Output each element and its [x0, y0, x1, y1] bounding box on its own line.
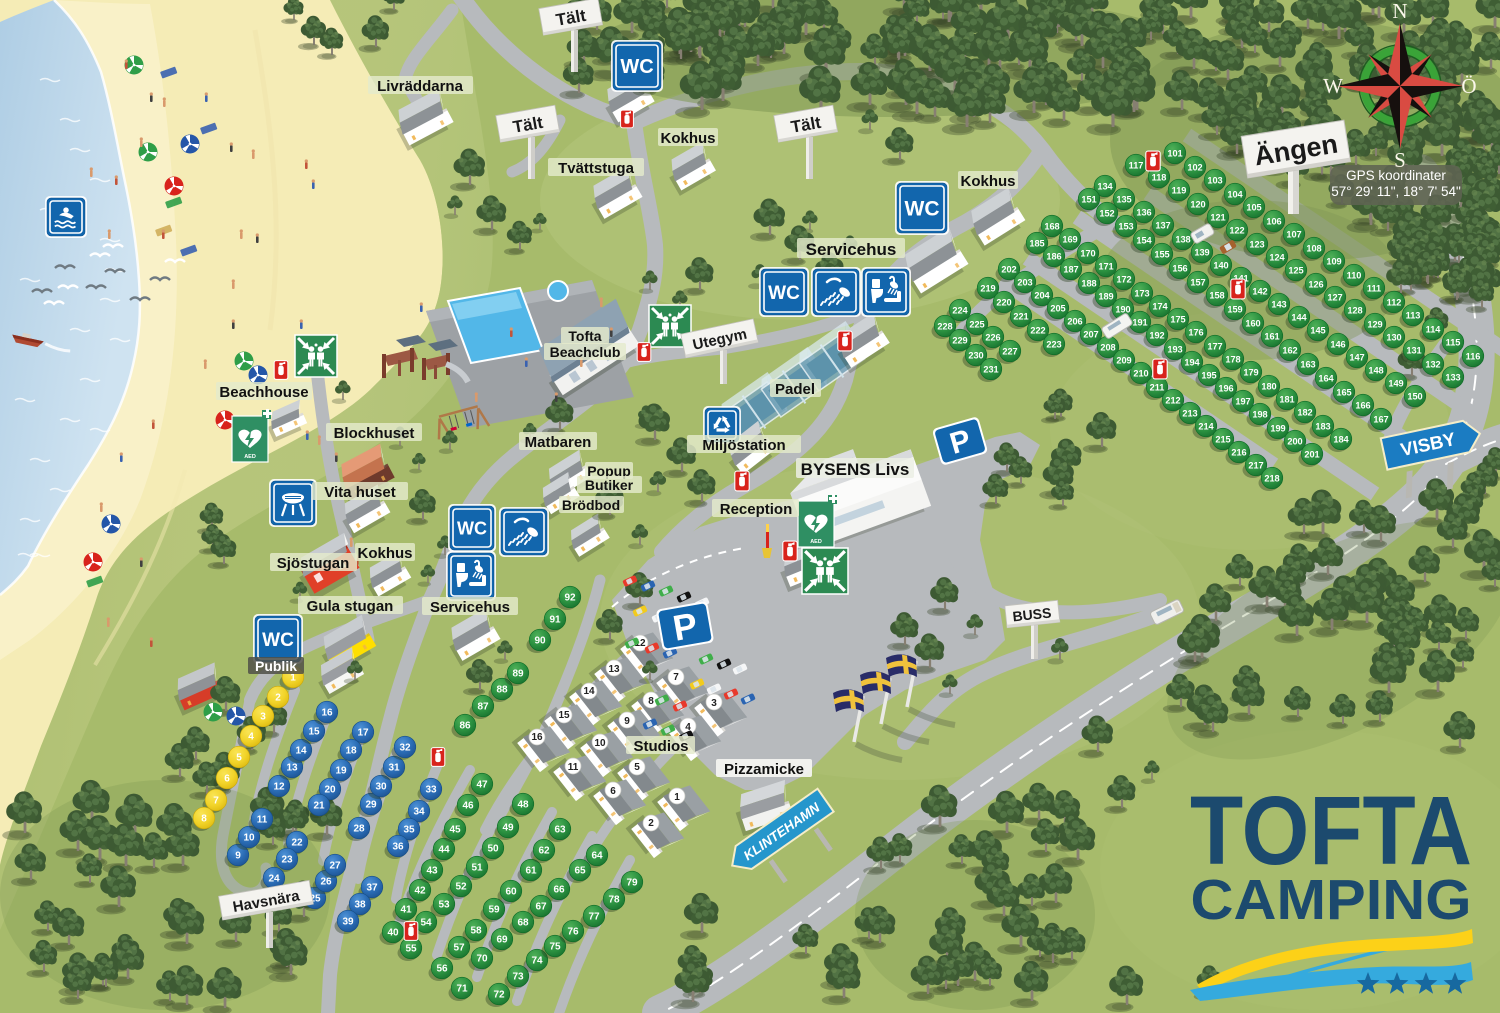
svg-text:54: 54: [420, 918, 432, 929]
svg-text:43: 43: [426, 866, 438, 877]
svg-text:Reception: Reception: [720, 501, 793, 518]
svg-text:Gula stugan: Gula stugan: [307, 598, 394, 615]
svg-text:140: 140: [1213, 261, 1228, 271]
svg-text:9: 9: [624, 716, 630, 727]
svg-text:184: 184: [1333, 435, 1349, 445]
svg-text:49: 49: [502, 823, 514, 834]
svg-text:193: 193: [1167, 345, 1182, 355]
svg-text:227: 227: [1002, 347, 1017, 357]
svg-text:AED: AED: [244, 454, 256, 460]
svg-text:15: 15: [558, 710, 570, 721]
svg-text:62: 62: [538, 846, 550, 857]
svg-text:169: 169: [1062, 235, 1077, 245]
svg-text:16: 16: [531, 732, 543, 743]
svg-text:69: 69: [496, 935, 508, 946]
svg-text:45: 45: [449, 825, 461, 836]
svg-text:189: 189: [1098, 292, 1113, 302]
svg-text:47: 47: [476, 780, 488, 791]
svg-text:Livräddarna: Livräddarna: [377, 78, 464, 95]
svg-text:42: 42: [414, 886, 426, 897]
svg-text:173: 173: [1134, 289, 1149, 299]
svg-text:196: 196: [1218, 384, 1233, 394]
svg-text:Kokhus: Kokhus: [960, 173, 1015, 190]
svg-text:205: 205: [1050, 304, 1065, 314]
svg-text:Beachclub: Beachclub: [550, 344, 621, 360]
svg-text:210: 210: [1133, 369, 1148, 379]
svg-text:203: 203: [1017, 278, 1032, 288]
svg-text:68: 68: [517, 918, 529, 929]
svg-text:37: 37: [366, 883, 378, 894]
svg-text:181: 181: [1279, 395, 1294, 405]
svg-text:1: 1: [674, 792, 680, 803]
svg-text:121: 121: [1210, 213, 1225, 223]
svg-text:119: 119: [1172, 186, 1187, 196]
svg-text:71: 71: [456, 984, 468, 995]
svg-text:208: 208: [1100, 343, 1115, 353]
svg-text:123: 123: [1249, 240, 1264, 250]
svg-text:88: 88: [496, 685, 508, 696]
svg-text:158: 158: [1209, 291, 1224, 301]
svg-text:162: 162: [1282, 346, 1297, 356]
svg-text:13: 13: [286, 763, 298, 774]
svg-text:212: 212: [1165, 396, 1180, 406]
svg-text:40: 40: [387, 928, 399, 939]
svg-text:Beachhouse: Beachhouse: [219, 384, 308, 401]
svg-text:142: 142: [1252, 287, 1267, 297]
svg-text:18: 18: [345, 746, 357, 757]
svg-text:78: 78: [608, 895, 620, 906]
svg-text:27: 27: [329, 861, 341, 872]
svg-text:29: 29: [365, 800, 377, 811]
svg-text:147: 147: [1349, 353, 1364, 363]
svg-text:124: 124: [1269, 253, 1285, 263]
svg-text:15: 15: [308, 727, 320, 738]
svg-text:22: 22: [291, 838, 303, 849]
svg-text:133: 133: [1445, 373, 1460, 383]
svg-text:103: 103: [1207, 176, 1222, 186]
svg-text:152: 152: [1099, 209, 1114, 219]
svg-text:5: 5: [634, 762, 640, 773]
svg-text:115: 115: [1446, 338, 1461, 348]
svg-text:178: 178: [1225, 355, 1240, 365]
svg-text:87: 87: [477, 702, 489, 713]
svg-text:221: 221: [1013, 312, 1028, 322]
svg-text:74: 74: [531, 956, 543, 967]
svg-text:138: 138: [1175, 235, 1190, 245]
svg-text:14: 14: [583, 686, 595, 697]
svg-text:8: 8: [201, 814, 207, 825]
svg-text:145: 145: [1310, 326, 1325, 336]
svg-text:Publik: Publik: [255, 658, 297, 674]
svg-text:64: 64: [591, 851, 603, 862]
svg-text:Kokhus: Kokhus: [660, 130, 715, 147]
svg-text:179: 179: [1243, 368, 1258, 378]
svg-text:7: 7: [673, 672, 679, 683]
svg-text:11: 11: [257, 815, 268, 826]
svg-text:35: 35: [403, 825, 415, 836]
svg-text:211: 211: [1150, 383, 1165, 393]
svg-text:90: 90: [534, 636, 546, 647]
svg-text:170: 170: [1080, 249, 1095, 259]
svg-text:79: 79: [626, 878, 638, 889]
svg-text:111: 111: [1367, 284, 1381, 294]
svg-text:122: 122: [1229, 226, 1244, 236]
svg-text:17: 17: [357, 728, 369, 739]
svg-text:2: 2: [275, 693, 281, 704]
svg-text:167: 167: [1373, 415, 1388, 425]
svg-text:67: 67: [535, 902, 547, 913]
svg-text:166: 166: [1355, 401, 1370, 411]
svg-text:32: 32: [399, 743, 411, 754]
svg-text:WC: WC: [905, 198, 940, 221]
svg-text:N: N: [1392, 0, 1407, 23]
svg-text:10: 10: [594, 738, 606, 749]
svg-text:Servicehus: Servicehus: [430, 599, 510, 616]
svg-text:153: 153: [1118, 222, 1133, 232]
svg-text:89: 89: [512, 669, 524, 680]
svg-text:38: 38: [354, 900, 366, 911]
svg-text:129: 129: [1367, 320, 1382, 330]
svg-text:143: 143: [1271, 300, 1286, 310]
svg-text:4: 4: [248, 732, 254, 743]
svg-text:66: 66: [553, 885, 565, 896]
svg-text:126: 126: [1308, 280, 1323, 290]
svg-text:110: 110: [1347, 271, 1362, 281]
svg-text:149: 149: [1388, 379, 1403, 389]
svg-text:61: 61: [525, 866, 537, 877]
svg-text:26: 26: [320, 877, 332, 888]
svg-text:19: 19: [335, 766, 347, 777]
svg-text:72: 72: [493, 990, 505, 1001]
svg-text:218: 218: [1264, 474, 1279, 484]
svg-text:60: 60: [505, 887, 517, 898]
svg-text:202: 202: [1001, 265, 1016, 275]
svg-text:229: 229: [952, 336, 967, 346]
svg-text:199: 199: [1270, 424, 1285, 434]
svg-text:160: 160: [1245, 319, 1260, 329]
svg-text:33: 33: [425, 785, 437, 796]
svg-text:118: 118: [1152, 173, 1167, 183]
svg-text:28: 28: [353, 824, 365, 835]
svg-text:51: 51: [471, 863, 483, 874]
svg-text:52: 52: [455, 882, 467, 893]
svg-text:197: 197: [1235, 397, 1250, 407]
svg-text:109: 109: [1326, 257, 1341, 267]
svg-text:185: 185: [1029, 239, 1044, 249]
svg-text:34: 34: [413, 807, 425, 818]
svg-text:187: 187: [1063, 265, 1078, 275]
svg-text:Matbaren: Matbaren: [525, 434, 592, 451]
svg-text:Sjöstugan: Sjöstugan: [277, 555, 350, 572]
svg-text:216: 216: [1231, 448, 1246, 458]
svg-text:223: 223: [1046, 340, 1061, 350]
svg-text:7: 7: [213, 796, 219, 807]
svg-text:164: 164: [1318, 374, 1334, 384]
svg-text:116: 116: [1466, 352, 1481, 362]
svg-text:128: 128: [1347, 306, 1362, 316]
svg-text:Padel: Padel: [775, 381, 815, 398]
svg-text:3: 3: [260, 712, 266, 723]
svg-text:91: 91: [549, 615, 561, 626]
svg-text:222: 222: [1030, 326, 1045, 336]
svg-text:192: 192: [1149, 331, 1164, 341]
svg-text:228: 228: [937, 322, 952, 332]
svg-text:155: 155: [1154, 250, 1169, 260]
svg-text:Pizzamicke: Pizzamicke: [724, 761, 804, 778]
svg-text:W: W: [1323, 74, 1343, 98]
svg-text:204: 204: [1034, 291, 1050, 301]
svg-text:Blockhuset: Blockhuset: [334, 425, 415, 442]
svg-text:195: 195: [1201, 371, 1216, 381]
svg-text:101: 101: [1167, 149, 1182, 159]
svg-text:137: 137: [1155, 221, 1170, 231]
svg-text:127: 127: [1327, 293, 1342, 303]
svg-text:6: 6: [610, 786, 616, 797]
svg-text:Studios: Studios: [634, 738, 689, 755]
svg-text:171: 171: [1098, 262, 1113, 272]
svg-text:14: 14: [295, 746, 307, 757]
svg-text:201: 201: [1304, 450, 1319, 460]
svg-text:53: 53: [438, 900, 450, 911]
svg-text:30: 30: [375, 782, 387, 793]
svg-text:56: 56: [436, 964, 448, 975]
svg-text:219: 219: [980, 284, 995, 294]
svg-text:135: 135: [1116, 195, 1131, 205]
svg-text:12: 12: [273, 782, 285, 793]
svg-text:70: 70: [476, 954, 488, 965]
svg-text:144: 144: [1291, 313, 1307, 323]
svg-text:63: 63: [554, 825, 566, 836]
svg-text:120: 120: [1190, 200, 1205, 210]
svg-text:73: 73: [512, 972, 524, 983]
svg-text:226: 226: [985, 333, 1000, 343]
svg-text:Butiker: Butiker: [585, 477, 634, 493]
svg-text:2: 2: [648, 818, 654, 829]
svg-text:198: 198: [1252, 410, 1267, 420]
svg-text:WC: WC: [457, 519, 487, 539]
svg-text:WC: WC: [262, 630, 294, 651]
svg-text:107: 107: [1286, 230, 1301, 240]
svg-text:55: 55: [405, 944, 417, 955]
svg-text:Vita huset: Vita huset: [324, 484, 395, 501]
svg-text:108: 108: [1306, 244, 1321, 254]
svg-text:92: 92: [564, 593, 576, 604]
svg-text:215: 215: [1215, 435, 1230, 445]
svg-text:6: 6: [224, 774, 230, 785]
svg-text:Tofta: Tofta: [568, 328, 601, 344]
svg-text:65: 65: [574, 866, 586, 877]
svg-text:161: 161: [1264, 332, 1279, 342]
svg-text:50: 50: [487, 844, 499, 855]
svg-text:131: 131: [1406, 346, 1421, 356]
svg-text:180: 180: [1261, 382, 1276, 392]
svg-text:224: 224: [952, 306, 968, 316]
svg-text:157: 157: [1190, 278, 1205, 288]
svg-text:106: 106: [1266, 217, 1281, 227]
svg-text:172: 172: [1116, 275, 1131, 285]
svg-text:186: 186: [1046, 252, 1061, 262]
svg-text:165: 165: [1336, 388, 1351, 398]
svg-text:41: 41: [400, 905, 412, 916]
svg-text:214: 214: [1198, 422, 1214, 432]
svg-text:159: 159: [1227, 305, 1242, 315]
svg-text:150: 150: [1407, 392, 1422, 402]
svg-text:WC: WC: [620, 56, 653, 78]
svg-text:102: 102: [1187, 163, 1202, 173]
svg-text:117: 117: [1129, 161, 1144, 171]
svg-text:174: 174: [1152, 302, 1168, 312]
svg-text:136: 136: [1136, 208, 1151, 218]
svg-text:113: 113: [1406, 311, 1421, 321]
svg-text:190: 190: [1115, 305, 1130, 315]
svg-text:154: 154: [1136, 236, 1152, 246]
svg-text:5: 5: [236, 753, 242, 764]
svg-text:20: 20: [324, 785, 336, 796]
svg-text:139: 139: [1194, 248, 1209, 258]
svg-text:8: 8: [648, 696, 654, 707]
svg-text:58: 58: [470, 926, 482, 937]
svg-text:24: 24: [268, 874, 280, 885]
svg-text:1: 1: [290, 673, 296, 684]
svg-text:57: 57: [453, 943, 465, 954]
svg-text:168: 168: [1044, 222, 1059, 232]
svg-text:163: 163: [1300, 360, 1315, 370]
svg-text:21: 21: [313, 801, 325, 812]
svg-text:105: 105: [1246, 203, 1261, 213]
svg-text:182: 182: [1297, 408, 1312, 418]
svg-text:175: 175: [1170, 315, 1185, 325]
svg-text:217: 217: [1248, 461, 1263, 471]
svg-text:3: 3: [711, 698, 717, 709]
svg-text:206: 206: [1067, 317, 1082, 327]
svg-text:194: 194: [1184, 358, 1200, 368]
svg-text:S: S: [1394, 148, 1406, 172]
svg-text:125: 125: [1288, 266, 1303, 276]
svg-text:209: 209: [1116, 356, 1131, 366]
svg-text:207: 207: [1083, 330, 1098, 340]
svg-text:230: 230: [968, 351, 983, 361]
svg-text:112: 112: [1387, 298, 1402, 308]
svg-text:46: 46: [462, 801, 474, 812]
svg-text:36: 36: [392, 842, 404, 853]
svg-text:9: 9: [235, 851, 241, 862]
svg-text:Servicehus: Servicehus: [806, 240, 897, 259]
svg-text:Brödbod: Brödbod: [562, 497, 620, 513]
svg-text:BYSENS Livs: BYSENS Livs: [801, 460, 910, 479]
svg-text:16: 16: [321, 708, 333, 719]
svg-text:AED: AED: [810, 539, 822, 545]
svg-text:Kokhus: Kokhus: [357, 545, 412, 562]
svg-text:76: 76: [567, 927, 579, 938]
svg-text:176: 176: [1188, 328, 1203, 338]
svg-text:48: 48: [517, 800, 529, 811]
svg-text:Ö: Ö: [1461, 74, 1476, 98]
svg-text:39: 39: [342, 917, 354, 928]
svg-text:151: 151: [1081, 195, 1096, 205]
svg-text:23: 23: [281, 855, 293, 866]
svg-text:WC: WC: [768, 283, 800, 304]
svg-text:114: 114: [1426, 325, 1442, 335]
svg-text:77: 77: [588, 912, 600, 923]
svg-text:57° 29' 11", 18° 7' 54": 57° 29' 11", 18° 7' 54": [1331, 184, 1461, 199]
svg-text:44: 44: [438, 845, 450, 856]
svg-text:148: 148: [1368, 366, 1383, 376]
svg-text:132: 132: [1425, 360, 1440, 370]
svg-text:Miljöstation: Miljöstation: [702, 437, 785, 454]
svg-text:191: 191: [1132, 318, 1147, 328]
svg-text:Tvättstuga: Tvättstuga: [558, 160, 635, 177]
svg-text:104: 104: [1227, 190, 1243, 200]
svg-text:31: 31: [388, 763, 400, 774]
svg-text:200: 200: [1287, 437, 1302, 447]
svg-text:220: 220: [996, 298, 1011, 308]
svg-text:188: 188: [1081, 279, 1096, 289]
svg-text:86: 86: [459, 721, 471, 732]
svg-text:75: 75: [549, 942, 561, 953]
svg-text:CAMPING: CAMPING: [1191, 868, 1472, 932]
svg-text:11: 11: [568, 762, 579, 773]
svg-text:13: 13: [608, 664, 620, 675]
svg-text:134: 134: [1097, 182, 1113, 192]
svg-text:59: 59: [488, 905, 500, 916]
svg-text:213: 213: [1182, 409, 1197, 419]
svg-text:225: 225: [969, 320, 984, 330]
svg-text:130: 130: [1386, 333, 1401, 343]
svg-text:177: 177: [1207, 342, 1222, 352]
svg-text:156: 156: [1172, 264, 1187, 274]
svg-text:10: 10: [243, 833, 255, 844]
svg-text:183: 183: [1315, 422, 1330, 432]
svg-text:146: 146: [1330, 340, 1345, 350]
svg-text:231: 231: [983, 365, 998, 375]
